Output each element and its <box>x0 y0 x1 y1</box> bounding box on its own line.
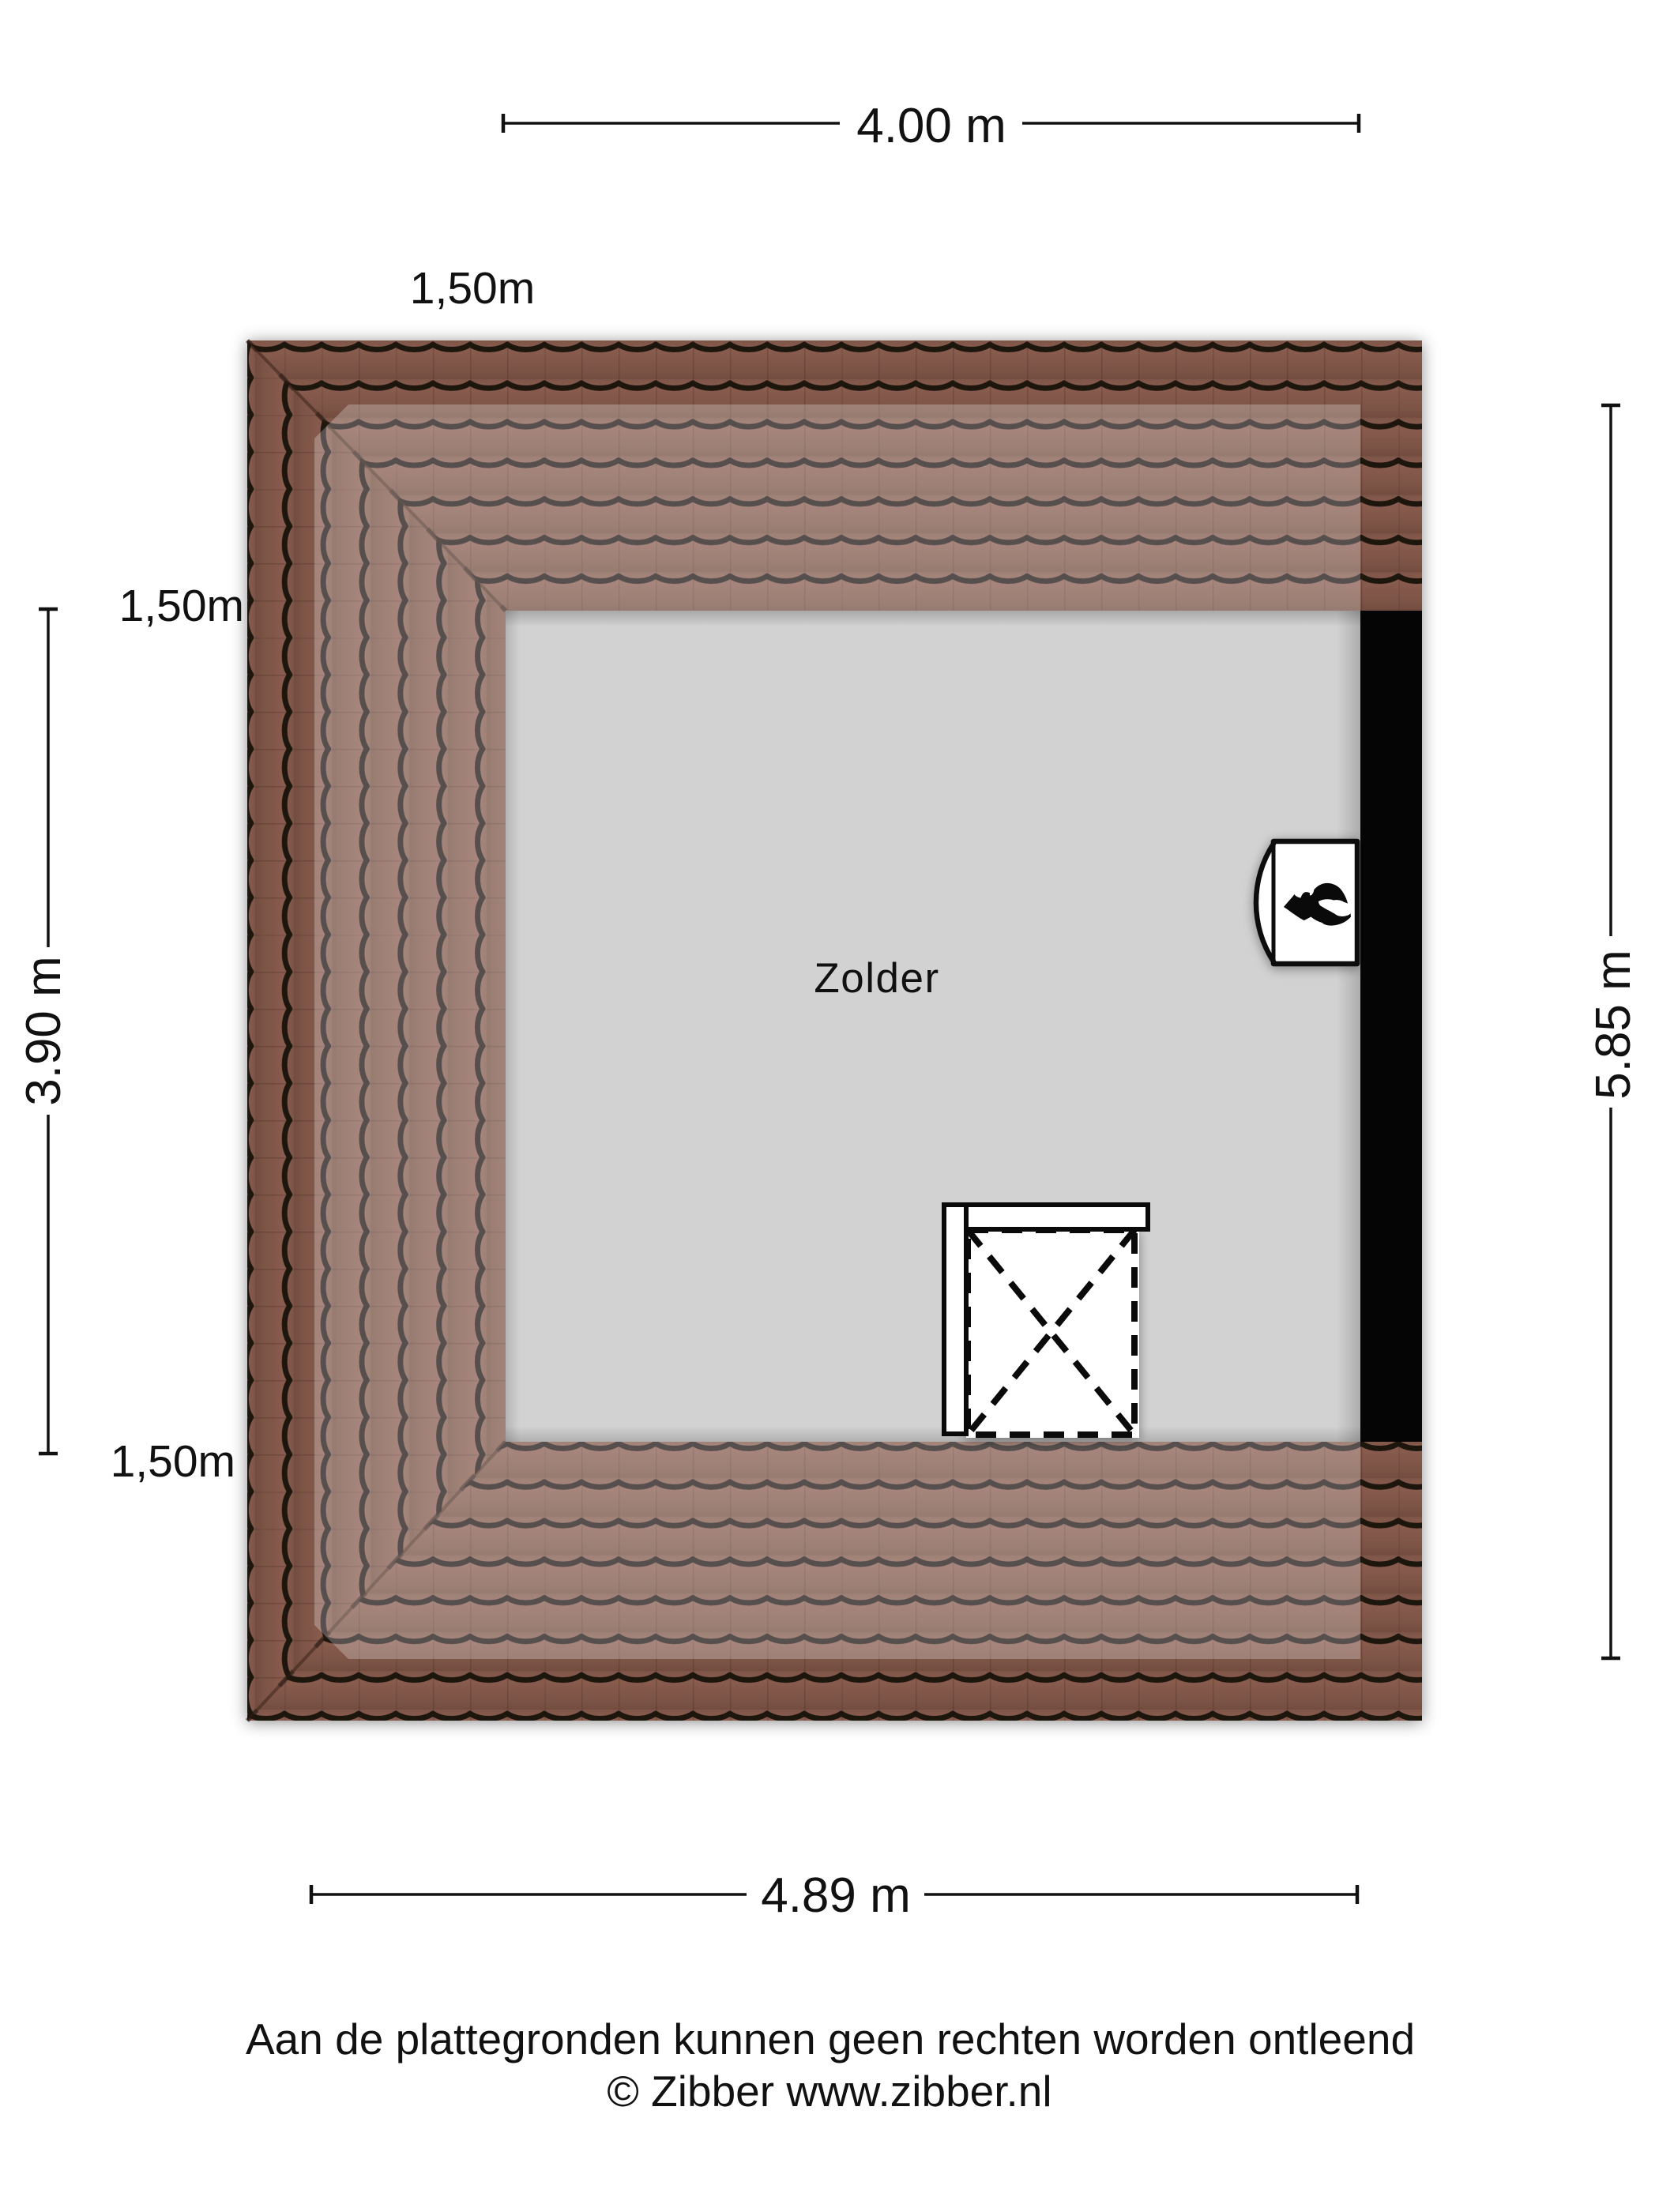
svg-text:3.90 m: 3.90 m <box>17 956 71 1106</box>
svg-text:1,50m: 1,50m <box>119 581 244 631</box>
svg-text:Aan de plattegronden kunnen ge: Aan de plattegronden kunnen geen rechten… <box>246 2014 1415 2063</box>
svg-text:Zolder: Zolder <box>814 955 939 1002</box>
svg-text:4.00 m: 4.00 m <box>856 99 1006 153</box>
svg-text:© Zibber www.zibber.nl: © Zibber www.zibber.nl <box>607 2067 1051 2116</box>
svg-text:1,50m: 1,50m <box>111 1436 235 1487</box>
svg-text:5.85 m: 5.85 m <box>1586 950 1641 1100</box>
svg-text:4.89 m: 4.89 m <box>761 1868 911 1923</box>
svg-text:1,50m: 1,50m <box>410 263 535 314</box>
